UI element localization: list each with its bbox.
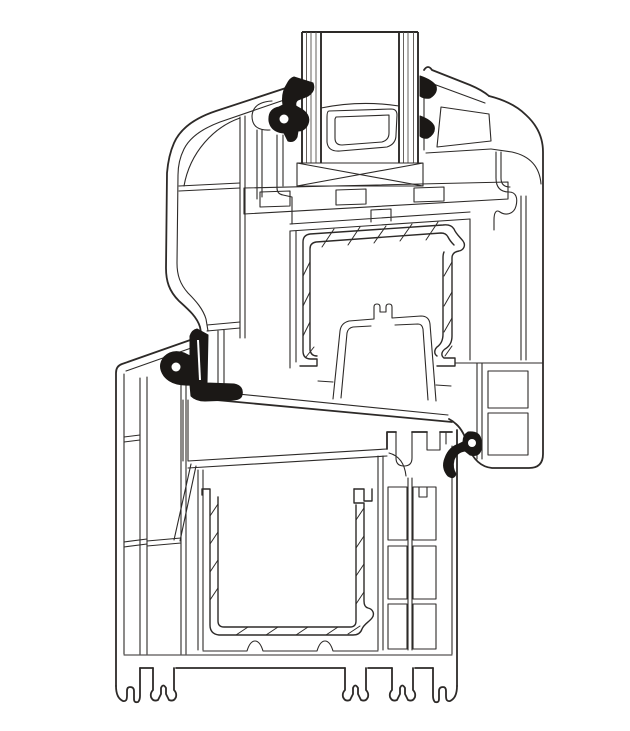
frame-outline <box>116 338 196 686</box>
setting-block <box>297 163 423 186</box>
frame-foot-left-outer <box>116 668 140 702</box>
glazing-unit <box>297 32 423 186</box>
sash-steel-hatch <box>303 222 452 357</box>
frame-steel-outer <box>202 489 373 635</box>
sash-chamber-top <box>290 209 470 231</box>
glass-pane-right-lines <box>404 32 414 163</box>
sash-steel-reinforcement <box>300 222 464 366</box>
sash-profile <box>166 67 543 468</box>
frame-steel-reinforcement <box>202 489 373 635</box>
sash-web-vertical <box>240 116 245 338</box>
drawing-canvas <box>0 0 630 731</box>
glazing-gasket-right-bottom <box>420 116 434 138</box>
weather-seal-left-void <box>172 363 181 372</box>
frame-webs <box>140 377 412 654</box>
glass-cavity-arc <box>321 103 399 108</box>
sash-steel-inner <box>310 233 454 356</box>
frame-upstand-notches <box>396 432 446 466</box>
sash-bottom-skin <box>205 399 452 422</box>
frame-rebate <box>183 400 387 468</box>
frame-outline-inner <box>124 347 194 654</box>
frame-upstand <box>387 432 452 449</box>
glass-pane-right <box>399 32 418 163</box>
frame-chamber-floor <box>203 641 378 651</box>
frame-upstand-arc <box>389 453 406 476</box>
weather-seal-right-void <box>468 439 476 447</box>
sash-step-left <box>207 322 240 390</box>
euro-groove <box>318 304 451 401</box>
sash-outline-left-inner <box>177 98 290 331</box>
sash-divider-horizontal <box>179 183 240 191</box>
frame-foot-pair-3 <box>390 668 416 701</box>
sash-web-curve <box>184 118 240 186</box>
frame-foot-right-outer <box>433 668 457 702</box>
cross-section-drawing <box>0 0 630 731</box>
glass-pane-left-lines <box>307 32 317 163</box>
frame-strut <box>174 464 196 541</box>
frame-foot-pair-2 <box>343 668 369 701</box>
sash-glazing-wall <box>277 135 292 224</box>
frame-steel-hatch <box>210 504 364 635</box>
sash-right-webs <box>491 149 541 360</box>
frame-steel-inner <box>218 489 372 627</box>
frame-profile <box>116 338 457 702</box>
glazing-gasket-left <box>269 77 314 142</box>
weather-seal-right <box>444 432 481 478</box>
glazing-bead-top-inner <box>428 82 485 103</box>
glazing-gasket-right-top <box>420 76 436 98</box>
frame-dividers <box>124 435 181 547</box>
frame-foot-pair-1 <box>151 668 177 701</box>
spacer-bar <box>327 109 397 151</box>
glazing-gasket-left-void <box>280 115 289 124</box>
